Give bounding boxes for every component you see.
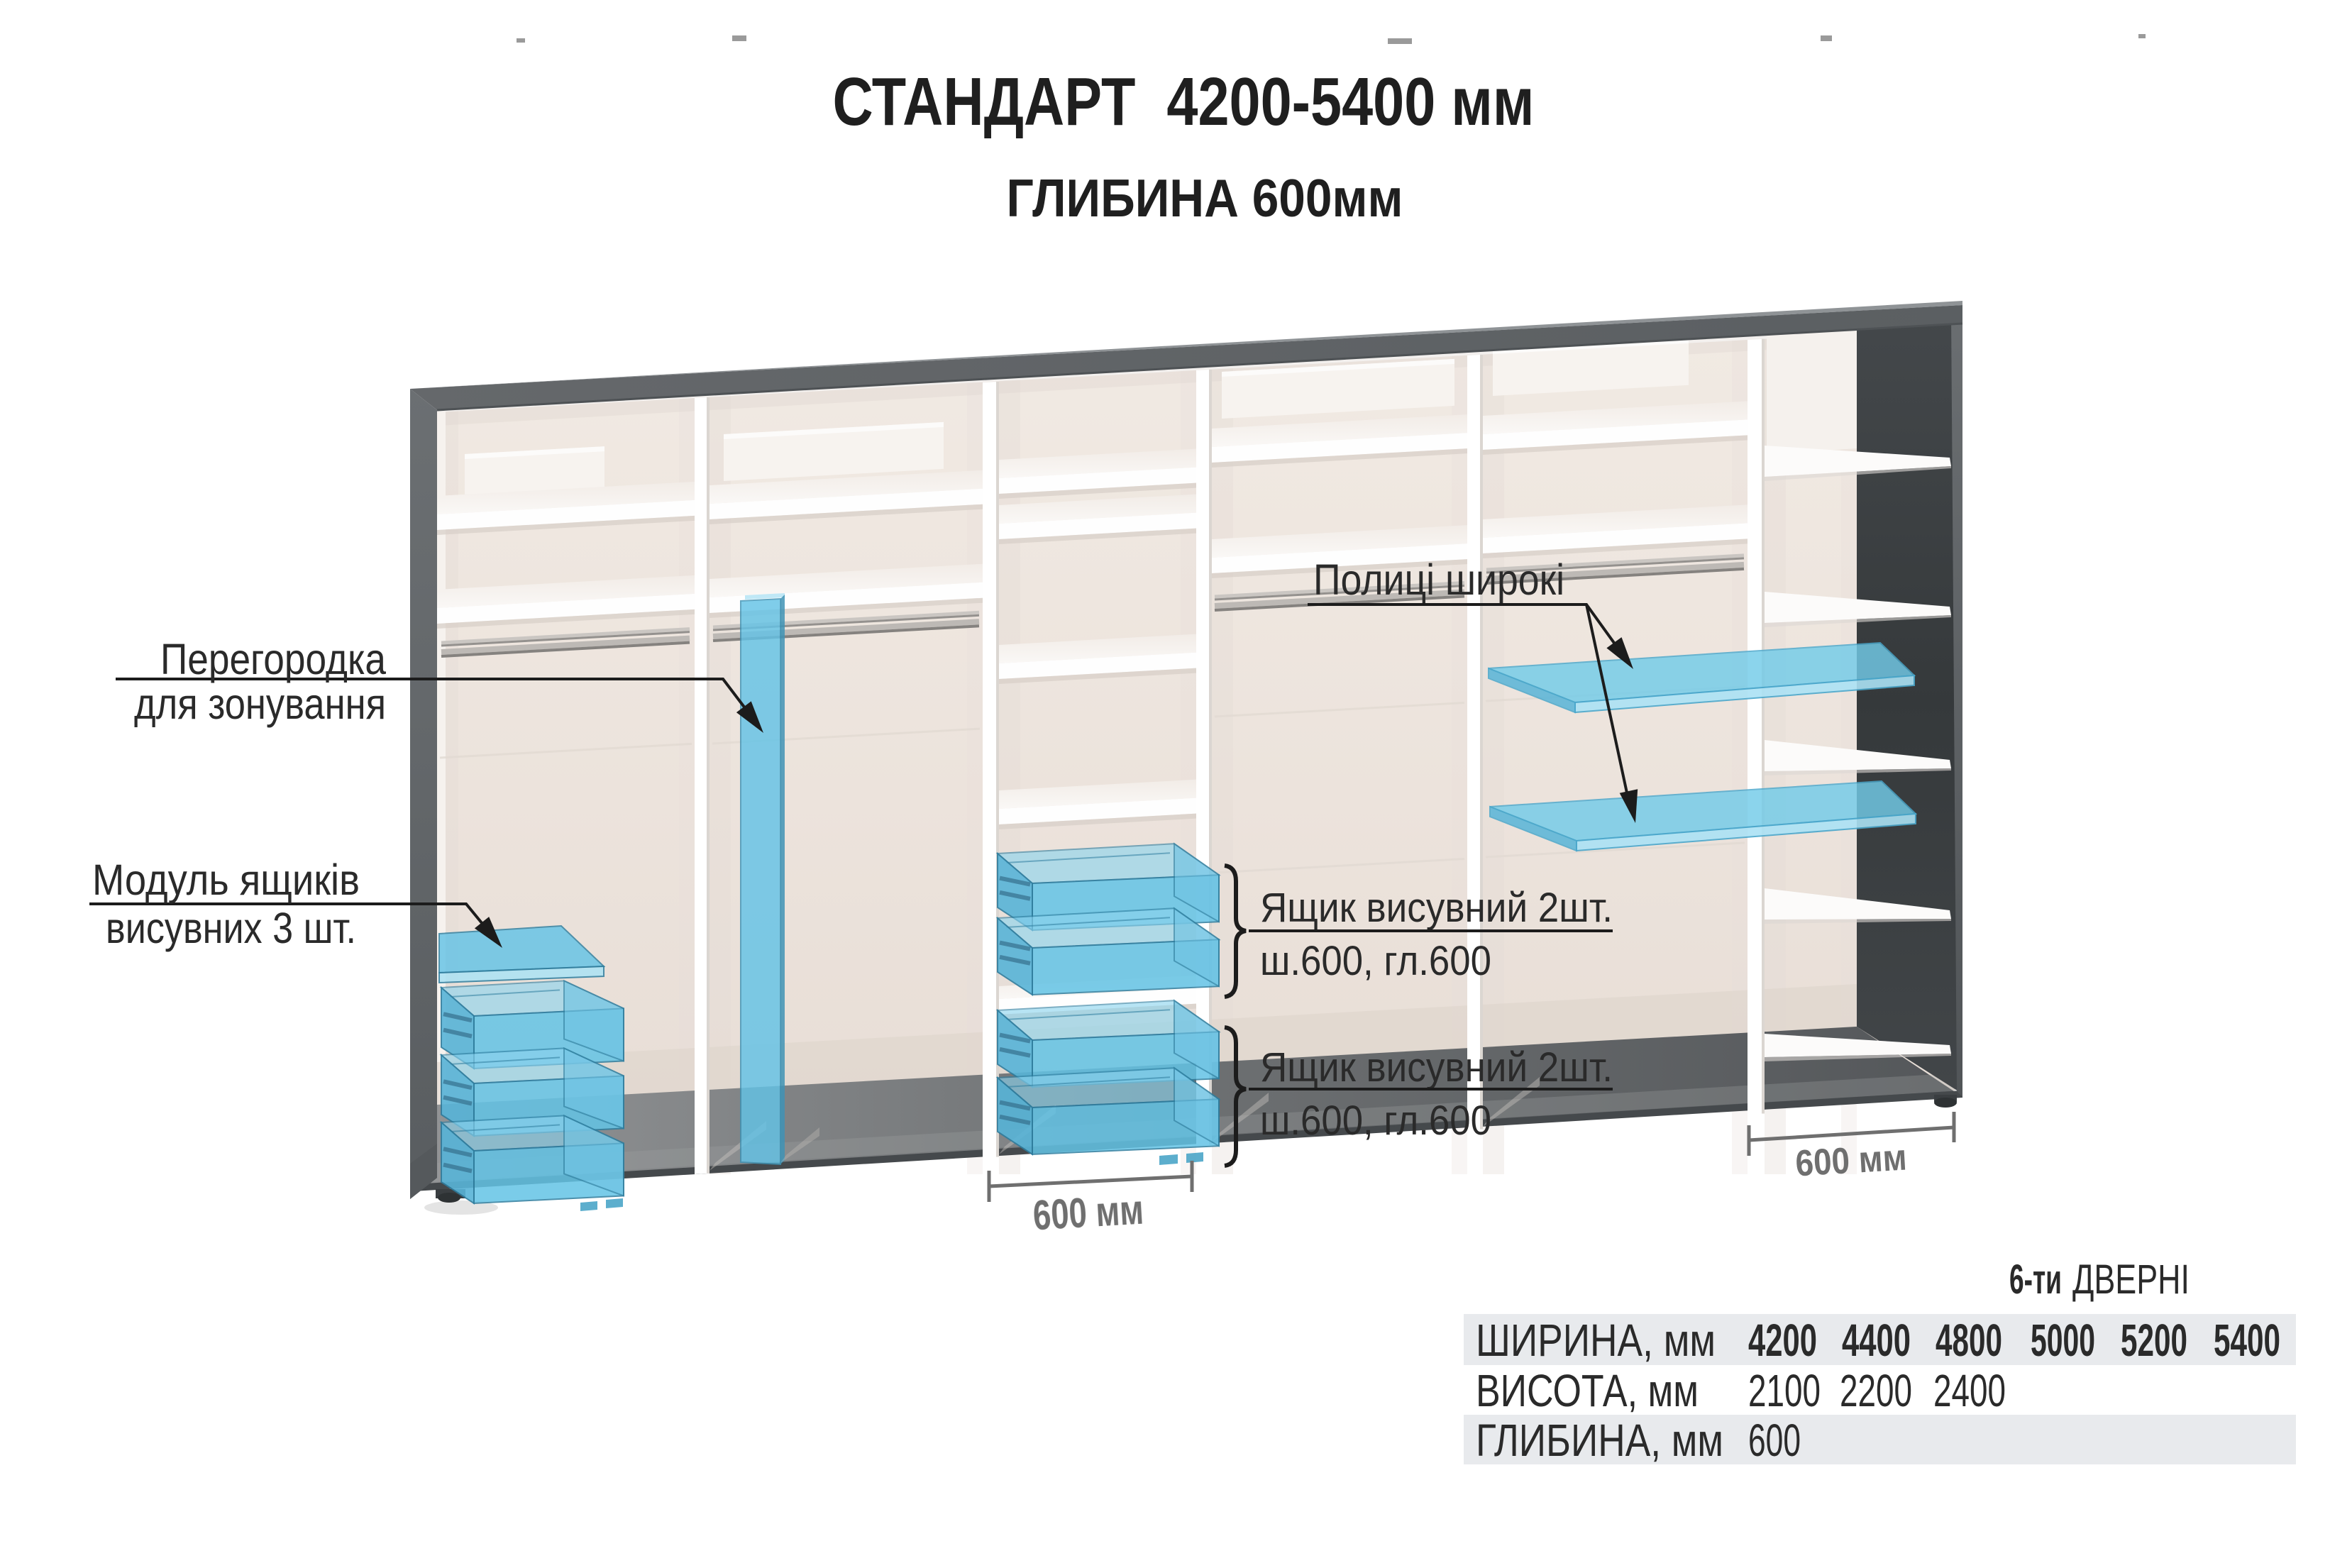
svg-text:4800: 4800 <box>1936 1315 2002 1366</box>
svg-text:600 мм: 600 мм <box>1794 1137 1908 1185</box>
svg-text:Перегородка: Перегородка <box>160 635 386 683</box>
svg-text:ДВЕРНІ: ДВЕРНІ <box>2072 1257 2190 1303</box>
svg-text:6-ти: 6-ти <box>2009 1257 2062 1303</box>
svg-text:ГЛИБИНА 600мм: ГЛИБИНА 600мм <box>1007 168 1403 228</box>
svg-text:ГЛИБИНА, мм: ГЛИБИНА, мм <box>1476 1415 1723 1466</box>
svg-text:600 мм: 600 мм <box>1032 1186 1145 1240</box>
svg-text:Полиці широкі: Полиці широкі <box>1313 556 1564 604</box>
svg-text:для зонування: для зонування <box>134 680 386 728</box>
svg-text:ВИСОТА, мм: ВИСОТА, мм <box>1476 1365 1699 1416</box>
svg-text:висувних 3 шт.: висувних 3 шт. <box>106 904 356 952</box>
svg-text:ш.600, гл.600: ш.600, гл.600 <box>1260 1098 1491 1144</box>
svg-text:2400: 2400 <box>1933 1365 2006 1416</box>
svg-text:5200: 5200 <box>2121 1315 2187 1366</box>
svg-text:ШИРИНА, мм: ШИРИНА, мм <box>1476 1315 1716 1366</box>
svg-text:600: 600 <box>1748 1415 1801 1466</box>
svg-text:Ящик висувний 2шт.: Ящик висувний 2шт. <box>1260 885 1613 931</box>
svg-text:5000: 5000 <box>2031 1315 2095 1366</box>
svg-text:2200: 2200 <box>1840 1365 1912 1416</box>
svg-text:Модуль ящиків: Модуль ящиків <box>92 856 360 904</box>
svg-text:4200: 4200 <box>1748 1315 1817 1366</box>
svg-text:Ящик висувний 2шт.: Ящик висувний 2шт. <box>1260 1044 1613 1091</box>
svg-text:2100: 2100 <box>1748 1365 1821 1416</box>
svg-text:4400: 4400 <box>1842 1315 1911 1366</box>
svg-text:СТАНДАРТ 4200-5400 мм: СТАНДАРТ 4200-5400 мм <box>833 64 1535 140</box>
svg-text:ш.600, гл.600: ш.600, гл.600 <box>1260 938 1491 984</box>
svg-text:5400: 5400 <box>2214 1315 2280 1366</box>
